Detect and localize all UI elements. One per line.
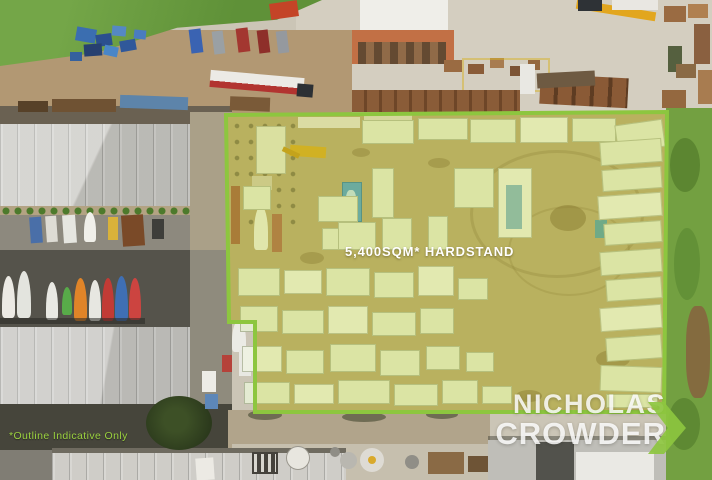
caravan [466,352,494,372]
blue-pile [84,43,103,56]
blue-pile [70,52,82,61]
caravan [597,192,663,220]
caravan [394,384,438,406]
agency-logo-line2: CROWDER [495,418,666,450]
caravan [470,119,516,143]
truck-cab [296,83,313,97]
building-roof [612,0,658,10]
caravan [599,138,663,166]
caravan [240,306,278,332]
pallet-stack [664,6,686,22]
shed-roof [272,214,282,252]
caravan [362,120,414,144]
van [202,371,216,392]
caravan [418,266,454,296]
crates [358,42,446,64]
caravan [603,220,662,246]
caravan [442,380,478,404]
trailer [120,95,188,110]
pallet-stack [662,90,686,108]
caravan [286,350,324,374]
caravan [372,312,416,336]
caravan [605,334,663,362]
caravan [326,268,370,296]
caravan [418,118,468,140]
building-roof [360,0,448,34]
container [230,96,270,111]
caravan [572,118,616,142]
trailer [537,70,596,88]
caravan [420,308,454,334]
tank [405,455,419,469]
shadow [342,412,386,422]
car [108,217,118,240]
caravan [243,186,271,210]
boat [254,206,268,250]
tree-canopy [146,396,212,450]
caravan [426,346,460,370]
van [62,215,77,244]
bottom-right-panel [576,452,654,480]
van [152,219,164,239]
tank [286,446,310,470]
caravan [330,344,376,372]
debris [686,306,710,398]
side-strip [190,112,232,252]
caravan [284,270,322,294]
agency-logo-line1: NICHOLAS [495,390,666,418]
caravan [282,310,324,334]
roof-sheen [0,327,192,404]
truck [121,214,145,246]
caravan [242,346,282,372]
sand-patch [300,252,324,264]
caravan [605,276,662,302]
truck [195,457,214,480]
car [29,217,43,244]
brick-stacks [352,90,520,112]
agency-logo: NICHOLAS CROWDER [495,390,666,450]
stored-goods [298,117,360,128]
caravan [244,382,290,404]
sand-patch [352,148,370,157]
car [222,355,232,372]
blue-pile [134,29,147,39]
sand-patch [550,205,586,231]
vegetation-blob [670,138,700,192]
pallet-stack [698,70,712,104]
equipment-detail [254,454,276,472]
pallet-stack [694,24,710,64]
caravan [294,384,334,404]
pallet-stack [428,452,464,474]
car [578,0,602,11]
caravan [601,166,662,192]
caravan [374,272,414,298]
hardstand-area-label: 5,400SQM* HARDSTAND [345,244,514,259]
pallet-stack [444,60,462,72]
blue-pile [112,25,127,36]
boat-deck [506,185,522,229]
caravan [599,304,663,332]
container [52,99,116,112]
shadow [426,410,458,419]
caravan [458,278,488,300]
caravan [338,380,390,404]
vegetation-blob [674,228,700,300]
caravan [318,196,358,222]
caravan [328,306,368,334]
boat-trailers [0,318,145,324]
caravan [599,248,663,276]
caravan [454,168,494,208]
truck-box [205,394,218,409]
sand-patch [428,158,450,168]
pallet-stack [468,456,488,472]
car [45,216,58,243]
ute [520,64,535,94]
container [18,101,48,112]
pallet-stack [688,4,708,18]
bottom-left-yard [0,450,52,480]
outline-disclaimer: *Outline Indicative Only [9,430,128,442]
shadow [248,410,282,420]
tank [340,452,357,469]
caravan [372,168,394,218]
tank-marking [368,456,376,464]
caravan [380,350,420,376]
caravan [238,268,280,296]
caravan [520,117,568,143]
tank [330,447,340,457]
aerial-photo: 5,400SQM* HARDSTAND *Outline Indicative … [0,0,712,480]
pallet-stack [676,64,696,78]
shed-roof [231,186,240,244]
